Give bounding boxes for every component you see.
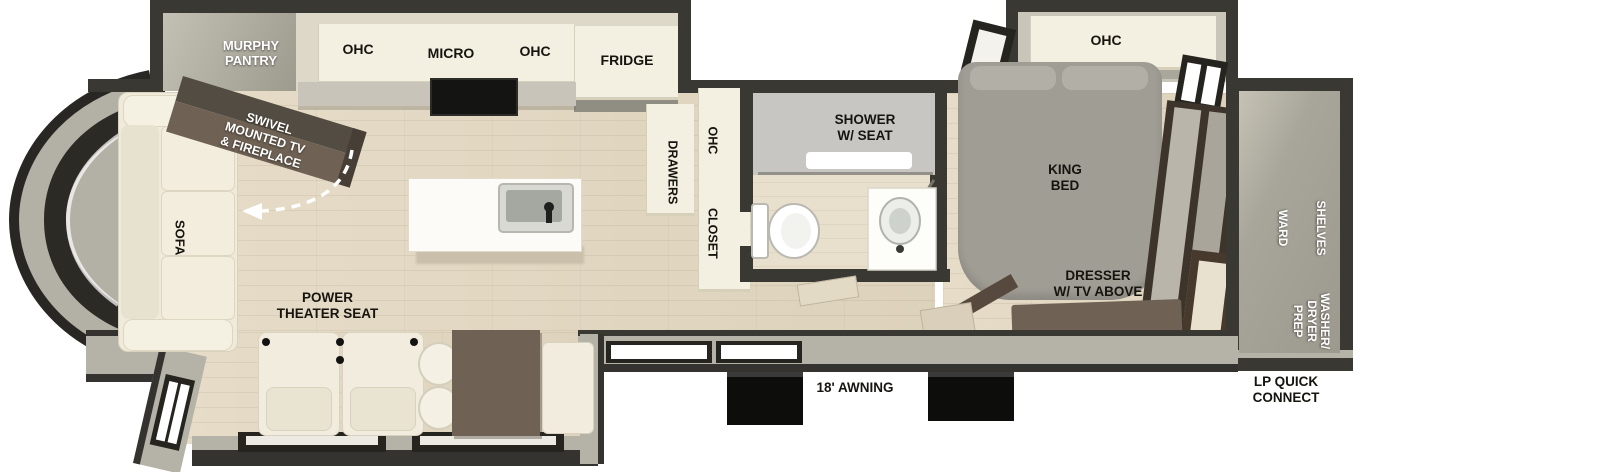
theater-seat-right	[342, 332, 424, 436]
bedroom-window-right-pane2	[1201, 66, 1221, 106]
slide-window-1-pane	[246, 436, 378, 445]
cupholder-3	[336, 356, 344, 364]
awning-label: 18' AWNING	[790, 380, 920, 396]
cupholder-4	[410, 338, 418, 346]
dresser-label: DRESSER W/ TV ABOVE	[1008, 268, 1188, 300]
bottom-wall-inner-line	[578, 330, 1238, 336]
wall-bedroom-right	[1226, 78, 1239, 363]
theater-seat-left	[258, 332, 340, 436]
wall-bedslide-top	[1006, 0, 1238, 12]
dinette-table	[452, 330, 540, 436]
ward-label: WARD	[1276, 200, 1290, 256]
sofa-armrest-bottom	[123, 319, 233, 351]
drawers-label: DRAWERS	[665, 134, 680, 210]
bed-pillow-left	[970, 66, 1056, 90]
slide-bottom-wall	[192, 450, 598, 466]
slide-window-2-pane	[420, 436, 556, 445]
cupholder-2	[336, 338, 344, 346]
sofa-label: SOFA	[172, 210, 187, 266]
ohc-bedroom-label: OHC	[1076, 32, 1136, 49]
washer-dryer-prep-label: WASHER/ DRYER PREP	[1291, 279, 1331, 363]
bottom-window-1	[606, 341, 712, 363]
entry-step-2	[928, 372, 1014, 421]
fridge-label: FRIDGE	[582, 52, 672, 69]
bottom-window-2-pane	[721, 345, 797, 359]
power-theater-seat-label: POWER THEATER SEAT	[240, 290, 415, 322]
bottom-window-2	[716, 341, 802, 363]
shower-label: SHOWER W/ SEAT	[800, 112, 930, 144]
rv-floorplan: MURPHY PANTRY OHC MICRO OHC FRIDGE SWIVE…	[0, 0, 1600, 472]
wall-top-slide	[150, 0, 690, 13]
wall-cap-top	[88, 79, 164, 92]
murphy-pantry-label: MURPHY PANTRY	[196, 38, 306, 69]
wall-rear-right	[1340, 78, 1353, 371]
ohc-kitchen-left-label: OHC	[322, 41, 394, 58]
ohc-kitchen-right-label: OHC	[500, 43, 570, 60]
closet-label: CLOSET	[705, 202, 720, 264]
bathroom-floor	[751, 168, 937, 270]
island-sink-basin	[506, 190, 562, 222]
wall-rear-bottom	[1226, 358, 1353, 371]
shower-seat	[806, 152, 912, 169]
dinette-bench	[542, 342, 594, 434]
shelves-label: SHELVES	[1314, 188, 1328, 268]
bedroom-window-right-pane1	[1181, 62, 1201, 102]
wall-top-rear	[1226, 78, 1353, 91]
bed-pillow-right	[1062, 66, 1148, 90]
bottom-window-1-pane	[611, 345, 707, 359]
wall-bedslide-right	[1226, 0, 1238, 82]
king-bed-label: KING BED	[1015, 162, 1115, 194]
shower-glass-line	[758, 172, 933, 175]
wall-bath-top	[740, 80, 950, 93]
cupholder-1	[262, 338, 270, 346]
ohc-hall-label: OHC	[705, 120, 720, 160]
cooktop	[430, 78, 518, 116]
micro-label: MICRO	[412, 45, 490, 62]
lp-quick-connect-label: LP QUICK CONNECT	[1230, 374, 1342, 406]
bottom-wall-outer-line	[578, 364, 1238, 372]
sofa-back	[121, 125, 159, 319]
wall-bath-left	[740, 80, 753, 212]
